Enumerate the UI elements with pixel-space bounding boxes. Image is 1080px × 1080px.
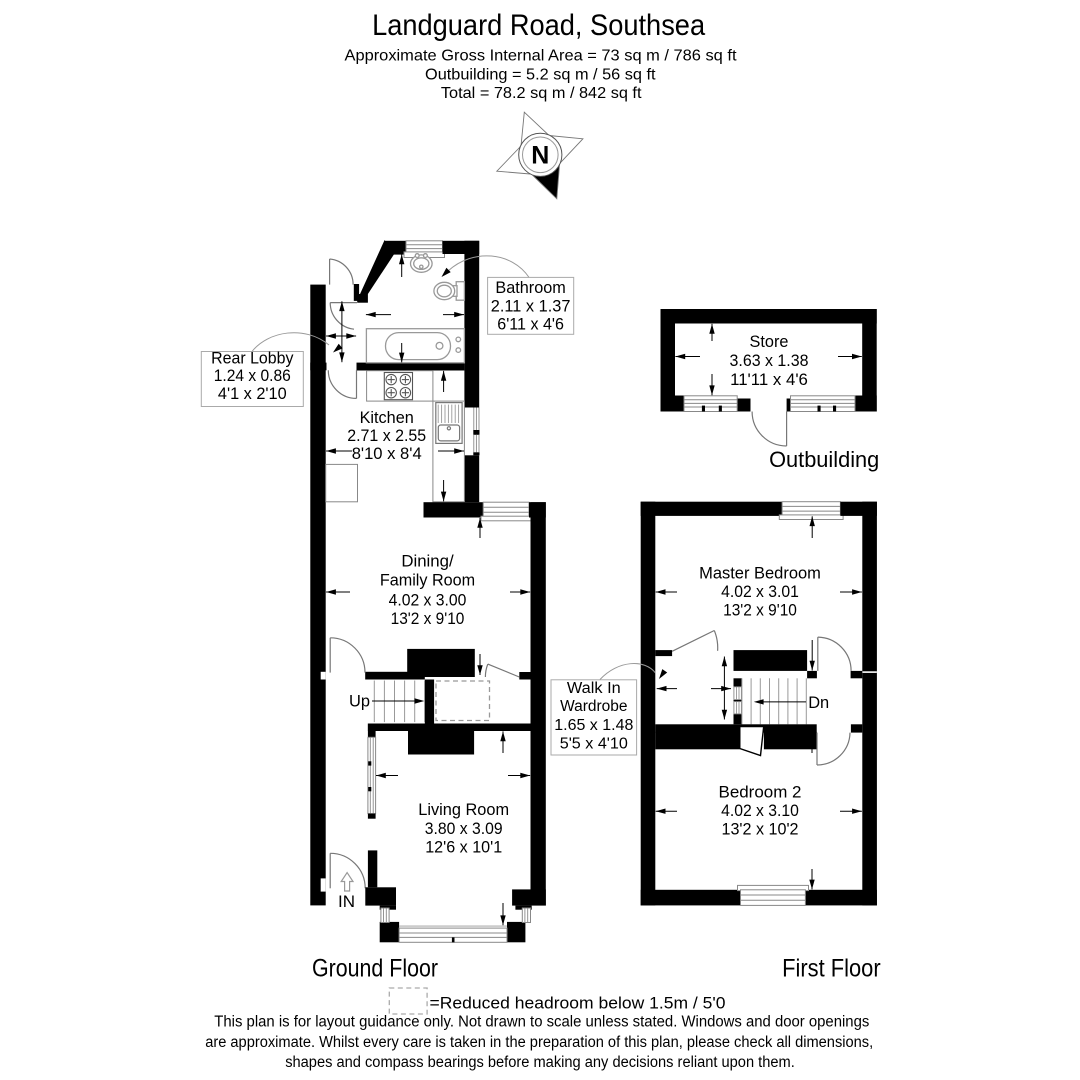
svg-text:Store: Store bbox=[750, 332, 789, 351]
svg-text:This plan is for layout guidan: This plan is for layout guidance only. N… bbox=[214, 1013, 869, 1030]
svg-text:3.63 x 1.38: 3.63 x 1.38 bbox=[730, 351, 809, 370]
svg-text:13'2 x 9'10: 13'2 x 9'10 bbox=[391, 609, 465, 628]
svg-text:Master Bedroom: Master Bedroom bbox=[699, 564, 821, 583]
svg-text:8'10 x 8'4: 8'10 x 8'4 bbox=[352, 444, 422, 463]
svg-text:Outbuilding: Outbuilding bbox=[769, 447, 879, 472]
svg-text:Kitchen: Kitchen bbox=[360, 408, 414, 427]
svg-text:4.02 x 3.00: 4.02 x 3.00 bbox=[389, 590, 467, 609]
svg-text:6'11 x 4'6: 6'11 x 4'6 bbox=[497, 315, 564, 334]
svg-text:4.02 x 3.01: 4.02 x 3.01 bbox=[721, 582, 799, 601]
svg-text:Walk In: Walk In bbox=[567, 680, 621, 697]
svg-text:Ground Floor: Ground Floor bbox=[312, 955, 438, 983]
svg-text:IN: IN bbox=[338, 892, 355, 911]
svg-text:2.71 x 2.55: 2.71 x 2.55 bbox=[347, 426, 426, 445]
svg-text:Landguard Road, Southsea: Landguard Road, Southsea bbox=[372, 9, 705, 42]
svg-text:12'6 x 10'1: 12'6 x 10'1 bbox=[425, 838, 502, 857]
svg-text:13'2 x 10'2: 13'2 x 10'2 bbox=[722, 819, 799, 838]
svg-text:Family Room: Family Room bbox=[380, 570, 475, 589]
svg-text:4'1 x 2'10: 4'1 x 2'10 bbox=[218, 384, 287, 403]
svg-text:Dn: Dn bbox=[808, 693, 829, 712]
svg-text:shapes and compass bearings be: shapes and compass bearings before makin… bbox=[285, 1054, 795, 1071]
svg-text:Bathroom: Bathroom bbox=[495, 278, 565, 297]
svg-text:5'5 x 4'10: 5'5 x 4'10 bbox=[560, 735, 628, 752]
svg-text:=Reduced headroom below 1.5m /: =Reduced headroom below 1.5m / 5'0 bbox=[430, 994, 726, 1013]
svg-text:Approximate Gross Internal Are: Approximate Gross Internal Area = 73 sq … bbox=[345, 48, 738, 65]
svg-text:3.80 x 3.09: 3.80 x 3.09 bbox=[425, 819, 503, 838]
svg-text:1.24 x 0.86: 1.24 x 0.86 bbox=[214, 366, 291, 385]
svg-text:N: N bbox=[531, 142, 549, 170]
svg-text:4.02 x 3.10: 4.02 x 3.10 bbox=[721, 801, 799, 820]
svg-text:Total = 78.2 sq m / 842 sq ft: Total = 78.2 sq m / 842 sq ft bbox=[441, 85, 642, 102]
svg-text:1.65 x 1.48: 1.65 x 1.48 bbox=[554, 717, 633, 734]
svg-text:13'2 x 9'10: 13'2 x 9'10 bbox=[723, 601, 797, 620]
svg-text:are approximate. Whilst every: are approximate. Whilst every care is ta… bbox=[205, 1034, 873, 1051]
svg-text:Up: Up bbox=[349, 692, 370, 711]
svg-text:First Floor: First Floor bbox=[782, 955, 881, 983]
svg-text:Bedroom 2: Bedroom 2 bbox=[719, 783, 802, 802]
svg-text:Dining/: Dining/ bbox=[401, 552, 454, 571]
svg-text:Outbuilding = 5.2 sq m / 56 sq: Outbuilding = 5.2 sq m / 56 sq ft bbox=[425, 66, 656, 83]
svg-text:2.11 x 1.37: 2.11 x 1.37 bbox=[491, 297, 571, 316]
svg-text:Wardrobe: Wardrobe bbox=[560, 698, 627, 715]
svg-text:11'11 x 4'6: 11'11 x 4'6 bbox=[730, 370, 808, 389]
svg-text:Living Room: Living Room bbox=[418, 800, 509, 819]
